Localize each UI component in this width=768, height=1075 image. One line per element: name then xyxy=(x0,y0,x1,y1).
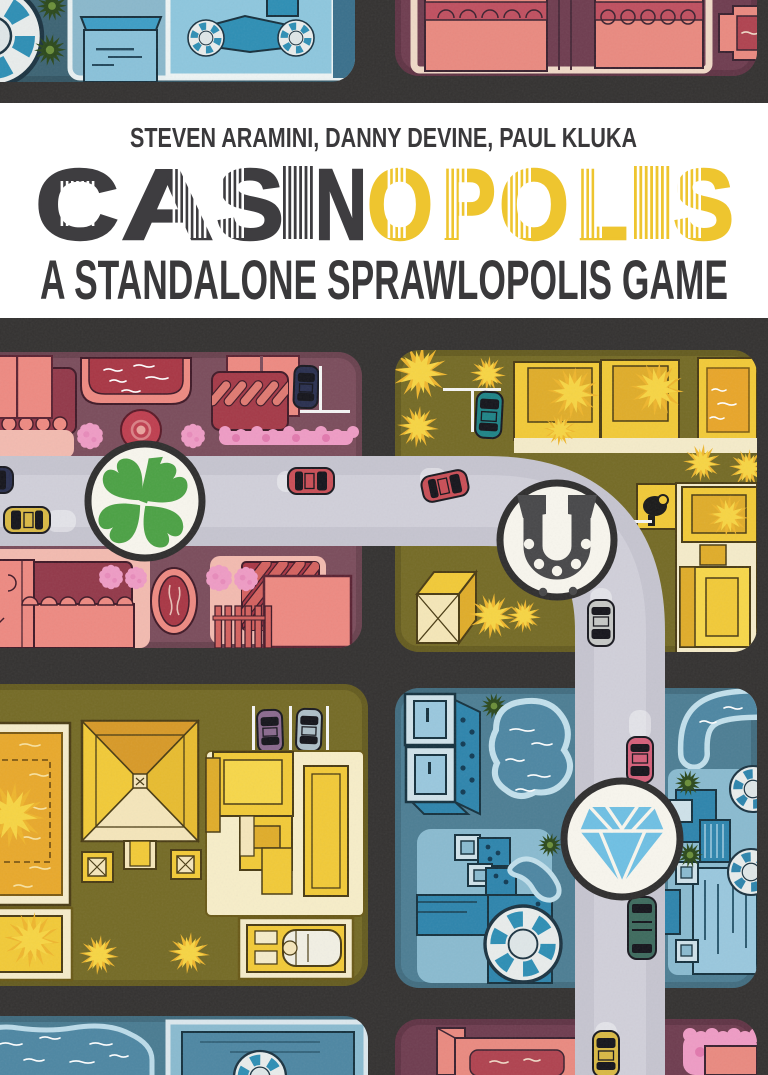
svg-text:A STANDALONE SPRAWLOPOLIS GAME: A STANDALONE SPRAWLOPOLIS GAME xyxy=(40,248,728,311)
svg-text:S: S xyxy=(673,149,734,261)
svg-text:P: P xyxy=(440,149,496,261)
svg-text:N: N xyxy=(315,149,367,261)
